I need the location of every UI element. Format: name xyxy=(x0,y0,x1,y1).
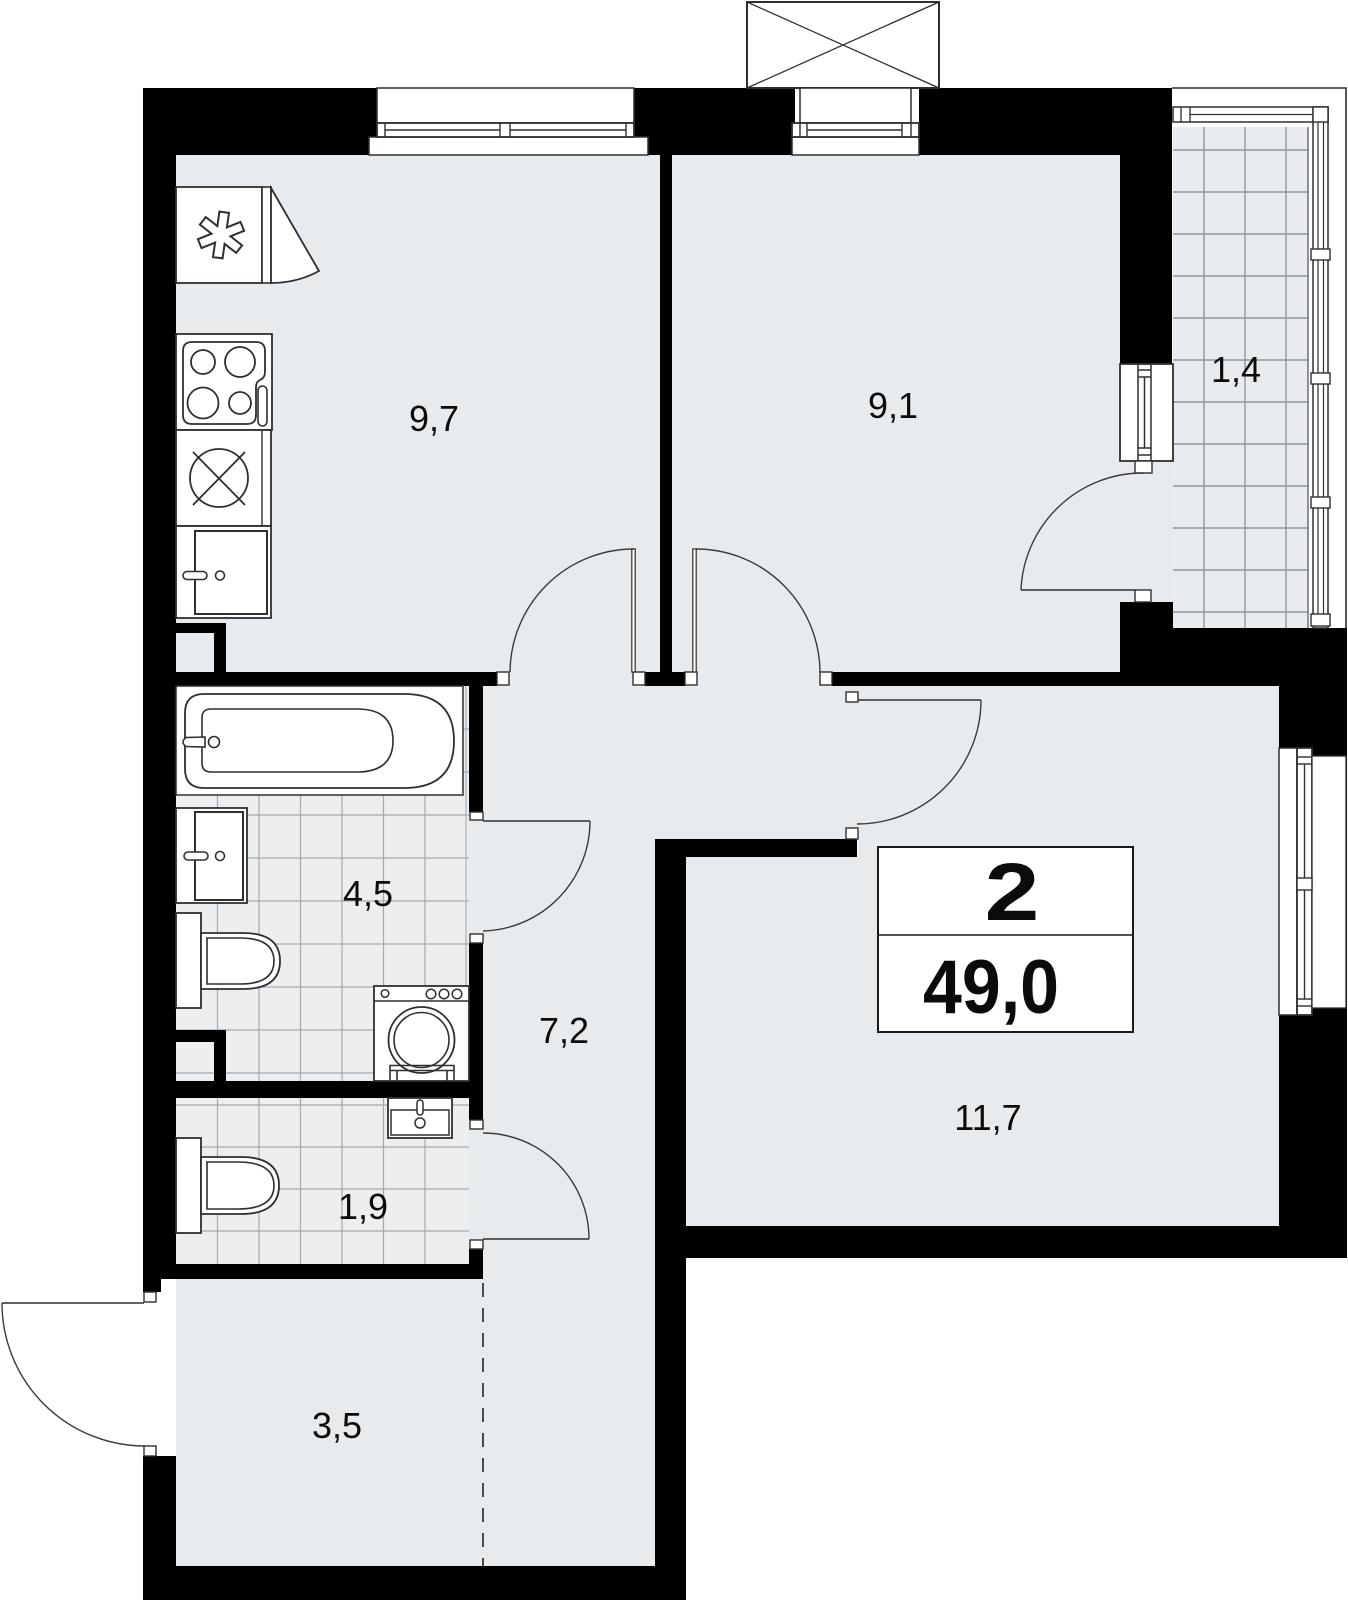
svg-text:11,7: 11,7 xyxy=(954,1097,1021,1138)
svg-text:3,5: 3,5 xyxy=(312,1405,362,1446)
svg-text:9,7: 9,7 xyxy=(409,398,459,439)
svg-text:2: 2 xyxy=(985,847,1040,938)
svg-text:4,5: 4,5 xyxy=(343,873,393,914)
svg-text:49,0: 49,0 xyxy=(923,945,1059,1030)
svg-text:9,1: 9,1 xyxy=(868,385,918,426)
svg-text:1,9: 1,9 xyxy=(338,1186,388,1227)
svg-text:7,2: 7,2 xyxy=(539,1010,589,1051)
svg-text:1,4: 1,4 xyxy=(1211,349,1261,390)
